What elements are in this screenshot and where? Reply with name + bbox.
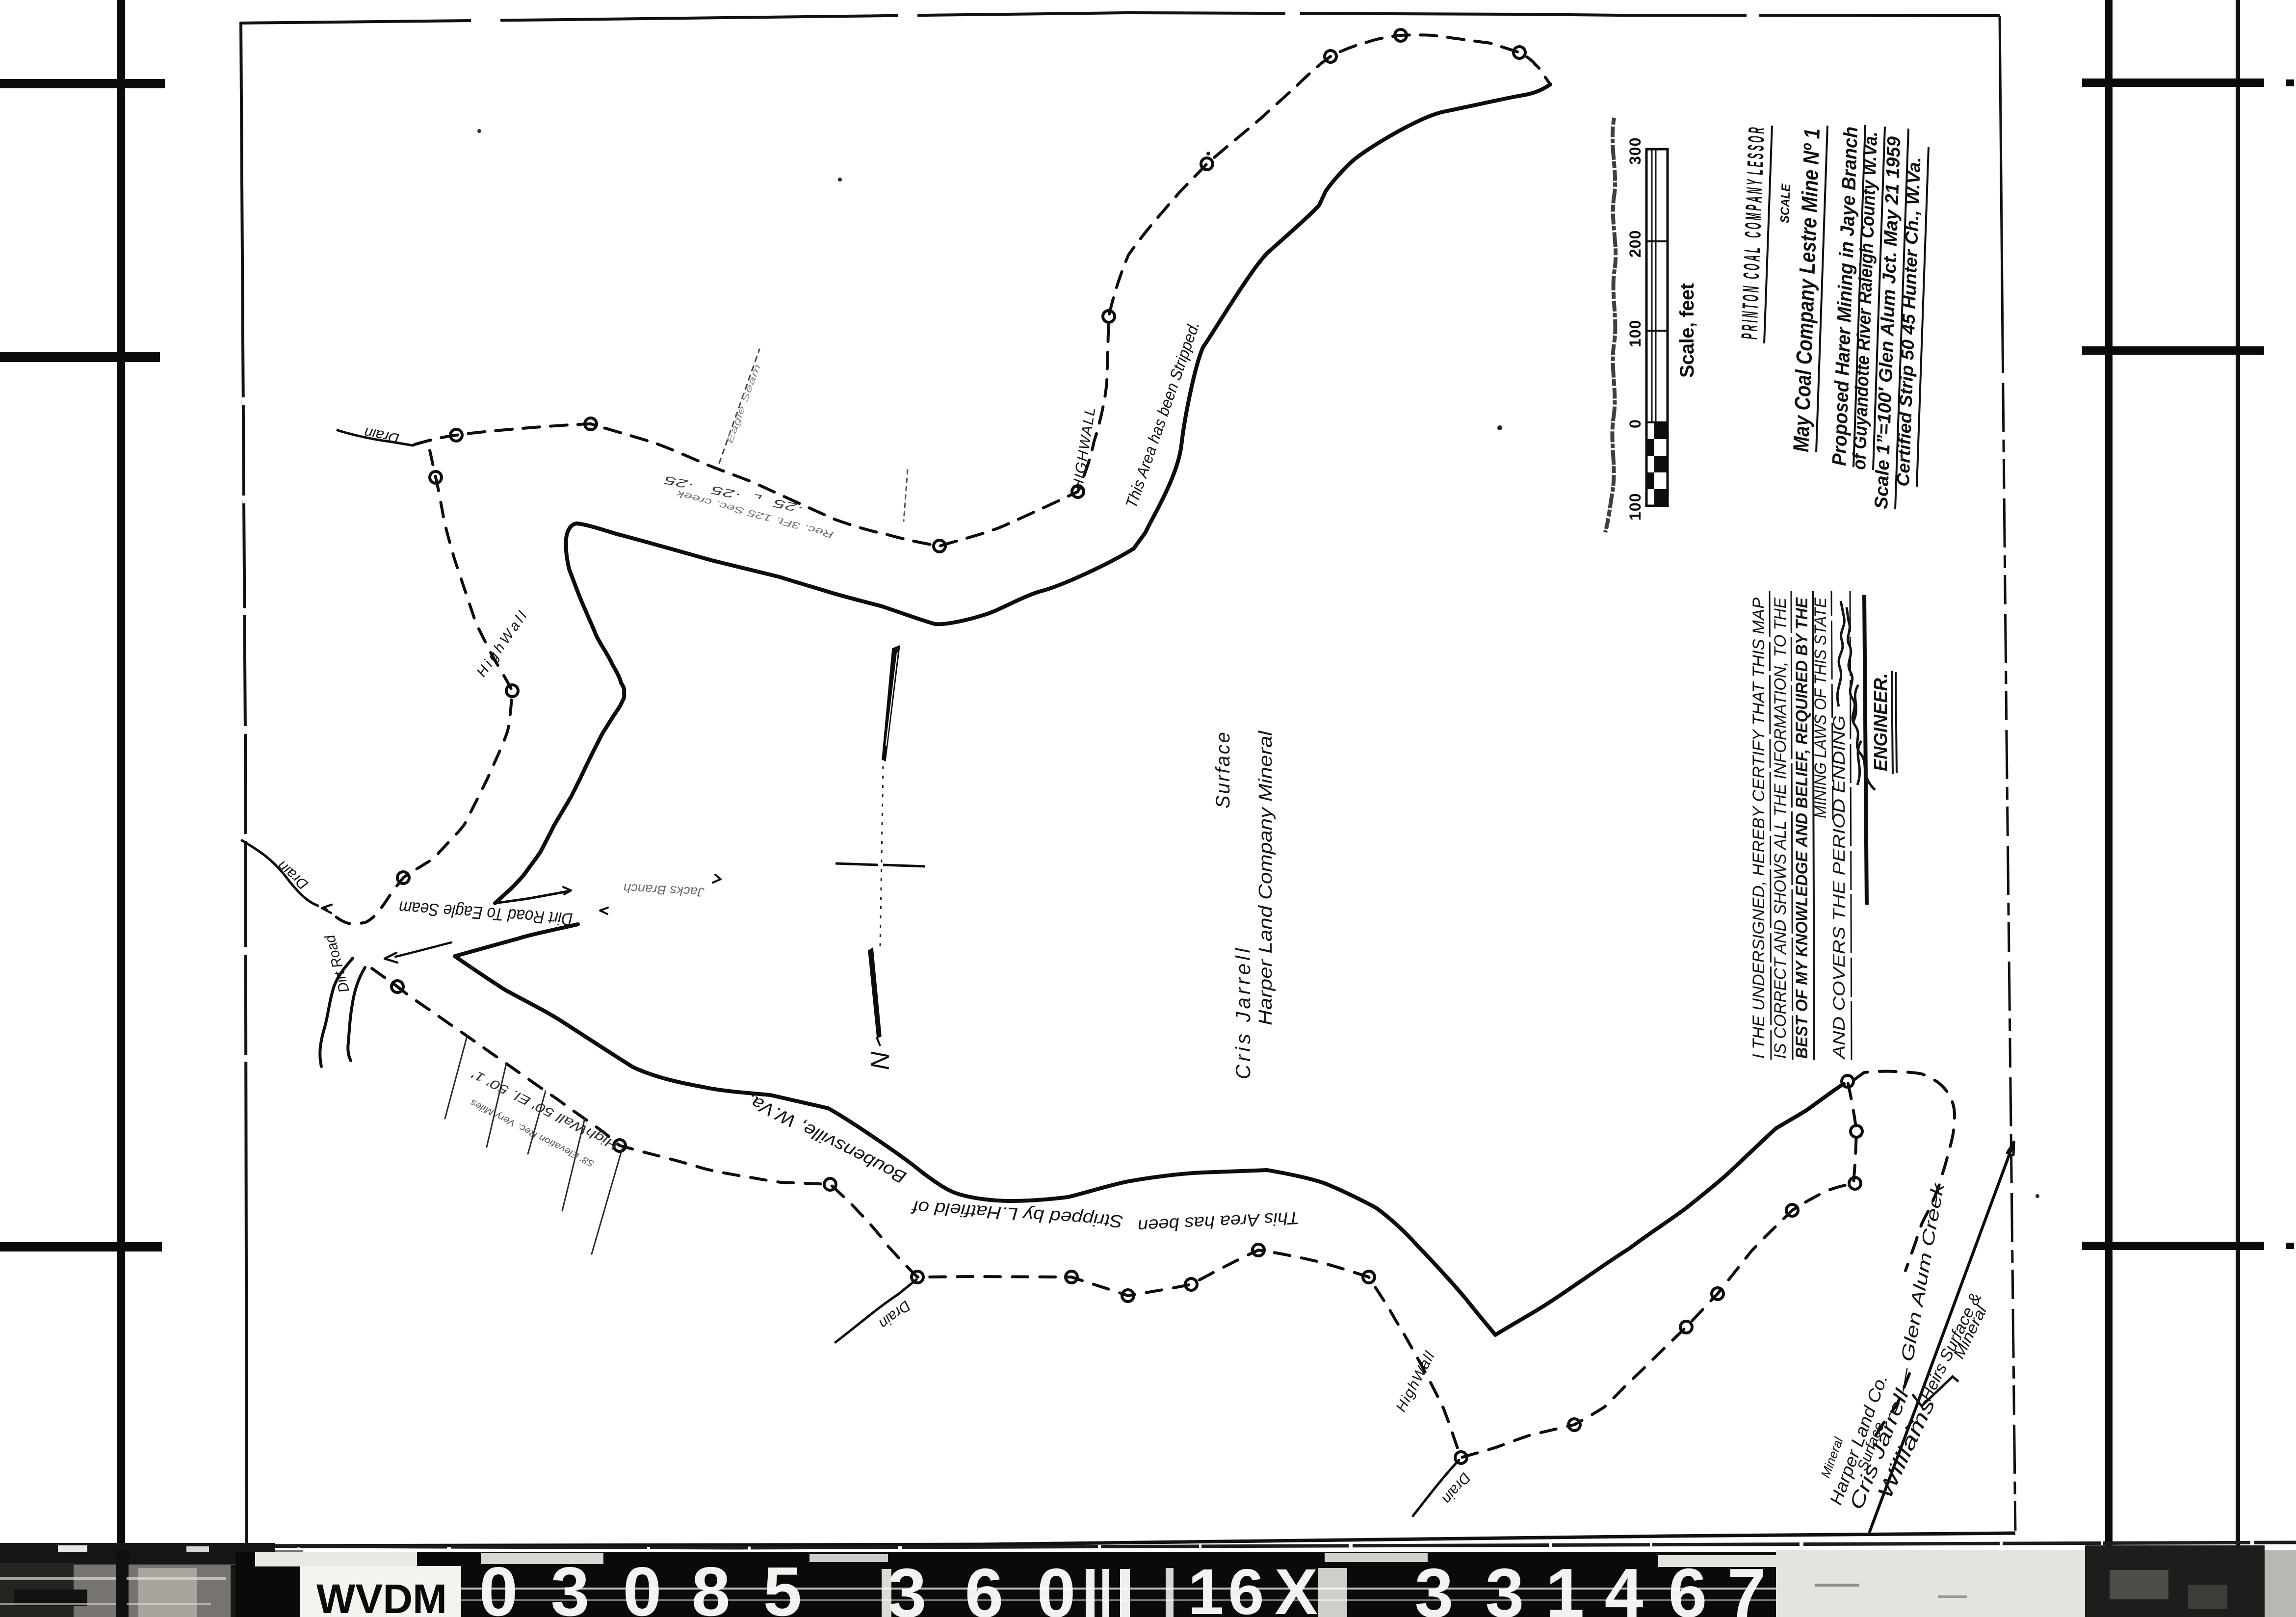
svg-text:6: 6 xyxy=(965,1554,1004,1617)
svg-text:6: 6 xyxy=(1669,1554,1707,1617)
svg-text:0: 0 xyxy=(479,1553,518,1617)
svg-text:4: 4 xyxy=(1605,1554,1644,1617)
svg-text:X: X xyxy=(1275,1556,1318,1617)
svg-text:100: 100 xyxy=(1626,493,1644,521)
svg-text:ENGINEER.: ENGINEER. xyxy=(1871,673,1891,771)
svg-text:3: 3 xyxy=(1415,1554,1454,1617)
svg-text:BEST OF MY KNOWLEDGE AND BELIE: BEST OF MY KNOWLEDGE AND BELIEF, REQUIRE… xyxy=(1793,597,1811,1059)
svg-text:WVDM: WVDM xyxy=(316,1576,447,1617)
svg-text:100: 100 xyxy=(1626,320,1644,347)
svg-text:I THE UNDERSIGNED, HEREBY CERT: I THE UNDERSIGNED, HEREBY CERTIFY THAT T… xyxy=(1749,598,1768,1059)
svg-text:7: 7 xyxy=(1727,1554,1766,1617)
svg-text:MINING LAWS OF THIS STATE: MINING LAWS OF THIS STATE xyxy=(1811,598,1830,818)
svg-text:N: N xyxy=(865,1051,894,1069)
svg-text:Surface: Surface xyxy=(1212,730,1234,808)
svg-text:8: 8 xyxy=(692,1553,731,1617)
svg-text:6: 6 xyxy=(1228,1556,1264,1617)
svg-text:0: 0 xyxy=(1037,1554,1076,1617)
svg-text:3: 3 xyxy=(1486,1554,1524,1617)
svg-text:1: 1 xyxy=(1188,1556,1224,1617)
svg-text:0: 0 xyxy=(1626,419,1644,428)
svg-text:0: 0 xyxy=(623,1553,662,1617)
svg-text:Harper Land Company Mineral: Harper Land Company Mineral xyxy=(1255,730,1276,1025)
svg-text:3: 3 xyxy=(551,1553,590,1617)
svg-text:300: 300 xyxy=(1626,137,1644,165)
svg-text:AND COVERS THE PERIOD ENDING: AND COVERS THE PERIOD ENDING xyxy=(1830,715,1849,1060)
svg-text:200: 200 xyxy=(1626,230,1644,258)
svg-text:3: 3 xyxy=(888,1554,927,1617)
svg-text:Cris Jarrell: Cris Jarrell xyxy=(1231,947,1254,1079)
svg-text:1: 1 xyxy=(1546,1554,1585,1617)
svg-text:SCALE: SCALE xyxy=(1778,183,1793,223)
svg-text:Scale, feet: Scale, feet xyxy=(1676,282,1698,378)
svg-text:5: 5 xyxy=(763,1553,802,1617)
svg-text:IS CORRECT AND SHOWS ALL THE I: IS CORRECT AND SHOWS ALL THE INFORMATION… xyxy=(1771,598,1790,1059)
